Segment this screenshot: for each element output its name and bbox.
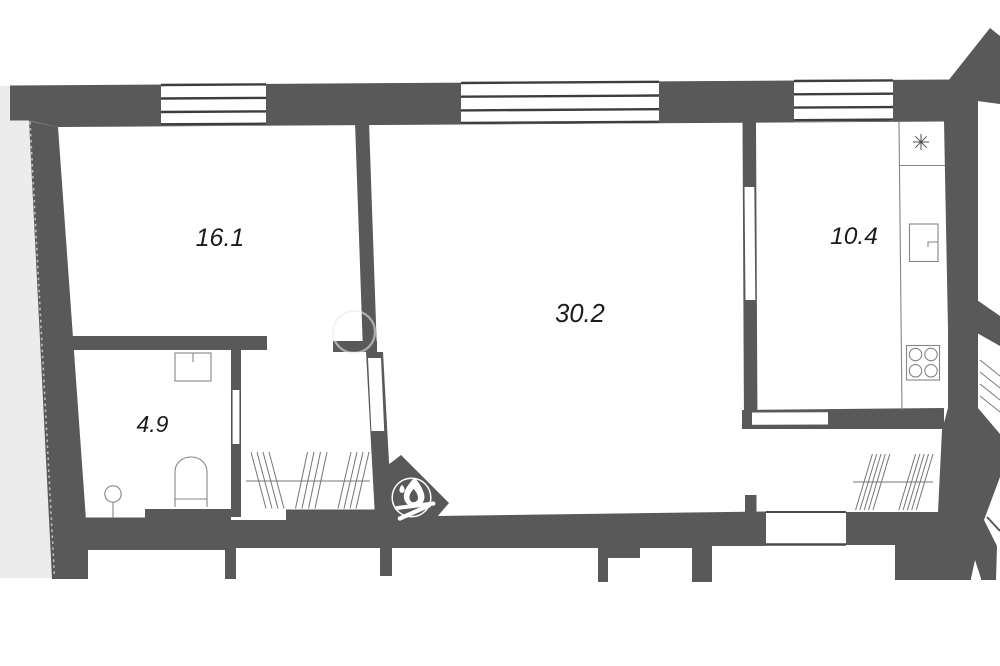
svg-text:4.9: 4.9 [137, 411, 169, 437]
svg-text:30.2: 30.2 [555, 300, 605, 328]
svg-text:10.4: 10.4 [830, 223, 878, 250]
svg-text:16.1: 16.1 [196, 224, 245, 252]
